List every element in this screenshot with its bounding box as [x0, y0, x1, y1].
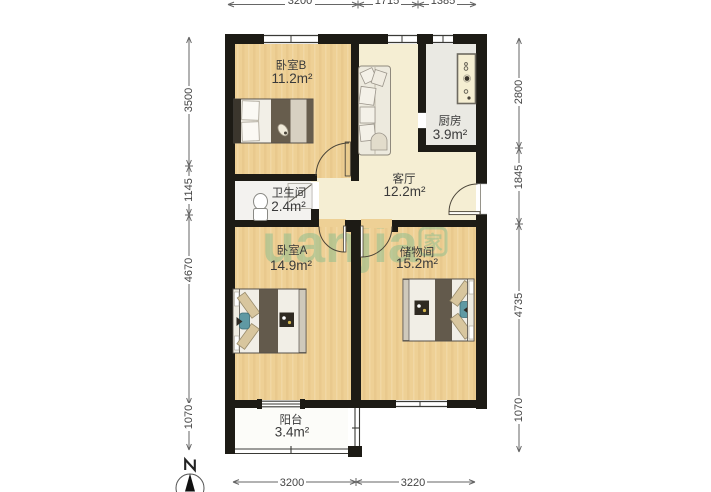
svg-text:15.2m²: 15.2m² [396, 256, 439, 271]
svg-text:1145: 1145 [183, 178, 195, 202]
svg-text:3220: 3220 [401, 477, 425, 489]
svg-text:12.2m²: 12.2m² [383, 184, 426, 199]
svg-text:卧室B: 卧室B [276, 58, 307, 72]
svg-text:2.4m²: 2.4m² [271, 199, 306, 214]
svg-text:3200: 3200 [280, 477, 304, 489]
svg-text:14.9m²: 14.9m² [270, 258, 313, 273]
svg-text:3.9m²: 3.9m² [433, 127, 468, 142]
svg-text:卧室A: 卧室A [277, 243, 308, 257]
svg-text:2800: 2800 [513, 80, 525, 104]
svg-text:11.2m²: 11.2m² [271, 71, 313, 86]
svg-text:卫生间: 卫生间 [272, 186, 307, 200]
svg-text:4735: 4735 [513, 293, 525, 317]
svg-text:1715: 1715 [375, 0, 399, 7]
svg-text:1385: 1385 [431, 0, 455, 7]
svg-text:4670: 4670 [183, 258, 195, 282]
svg-text:1070: 1070 [513, 398, 525, 422]
svg-text:1845: 1845 [513, 165, 525, 189]
svg-text:3200: 3200 [288, 0, 312, 7]
svg-text:3500: 3500 [183, 88, 195, 112]
svg-text:1070: 1070 [183, 405, 195, 429]
svg-text:厨房: 厨房 [439, 115, 462, 128]
svg-text:3.4m²: 3.4m² [275, 425, 310, 440]
